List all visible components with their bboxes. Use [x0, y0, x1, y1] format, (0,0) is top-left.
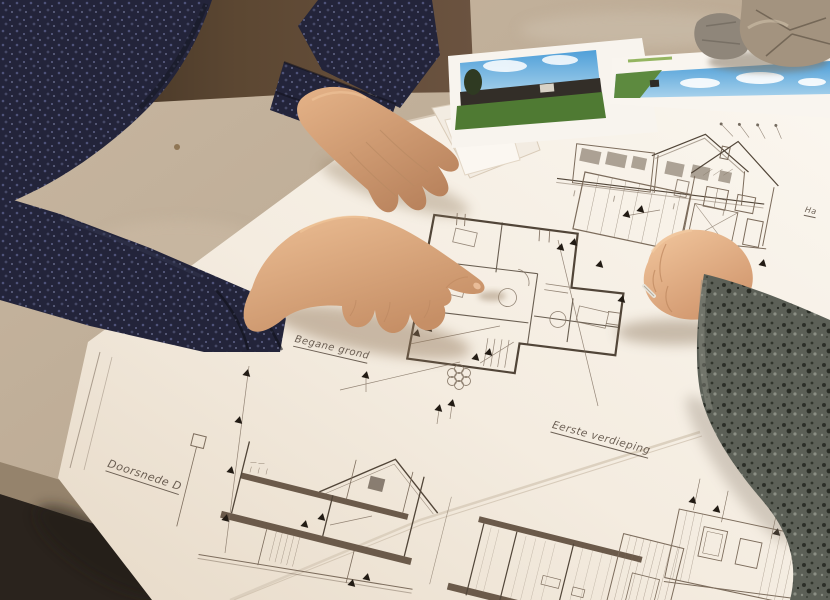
- photo-architects-table: Begane grond Eerste verdieping Doorsnede…: [0, 0, 830, 600]
- render-tree: [464, 69, 482, 95]
- shirt-button: [174, 144, 180, 150]
- label-partial: Ha: [804, 205, 818, 218]
- scene-canvas: [0, 0, 830, 600]
- strip-house: [650, 80, 659, 88]
